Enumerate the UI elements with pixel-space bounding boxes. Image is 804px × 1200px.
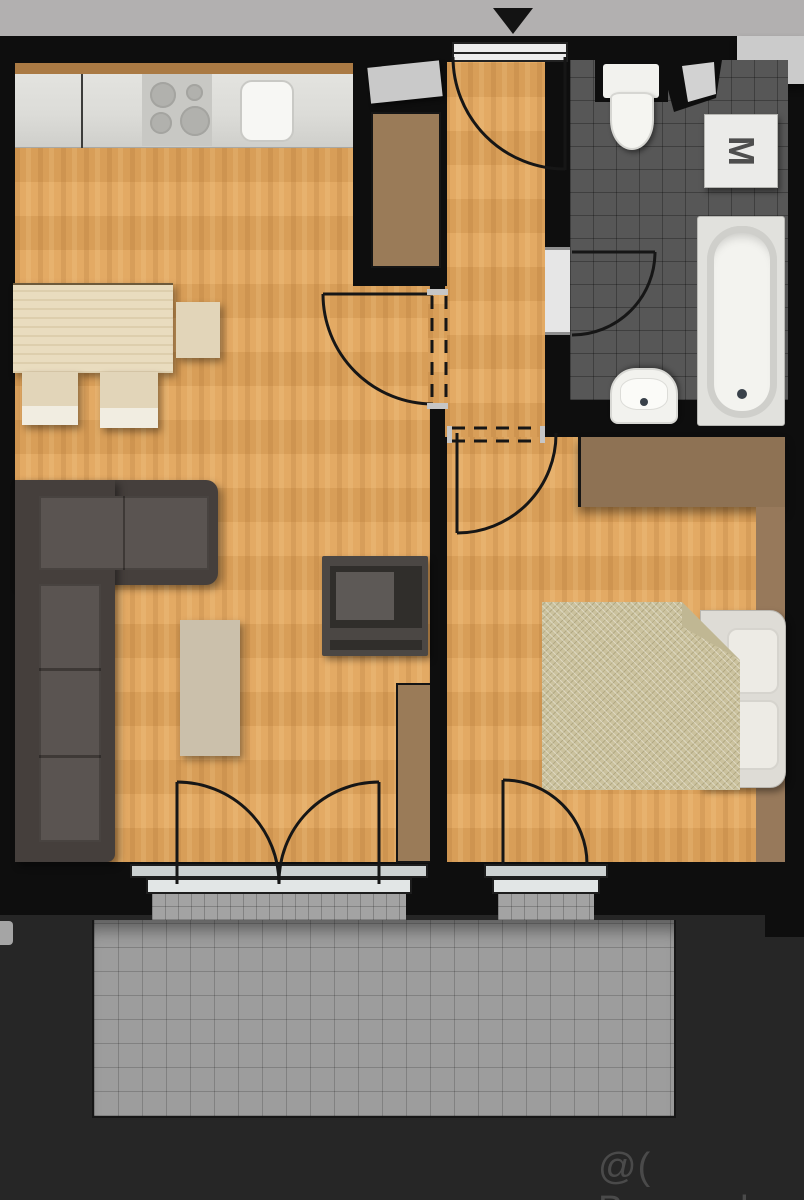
bathroom-door-swing [572,252,655,335]
entry-door-swing [453,57,565,170]
door-swing-overlay [0,0,804,1200]
bedroom-door-swing [457,433,556,533]
living-french-door-swing [177,782,379,884]
bedroom-balcony-door-swing [503,780,587,864]
site-watermark: @( Bazos.sk [598,1146,804,1200]
floor-plan-canvas: M [0,0,804,1200]
hall-living-door-swing [323,294,433,404]
hall-living-opening-dashes [432,296,446,404]
bathroom-vent-shaft [660,60,722,112]
hall-bedroom-opening-dashes [452,428,543,441]
